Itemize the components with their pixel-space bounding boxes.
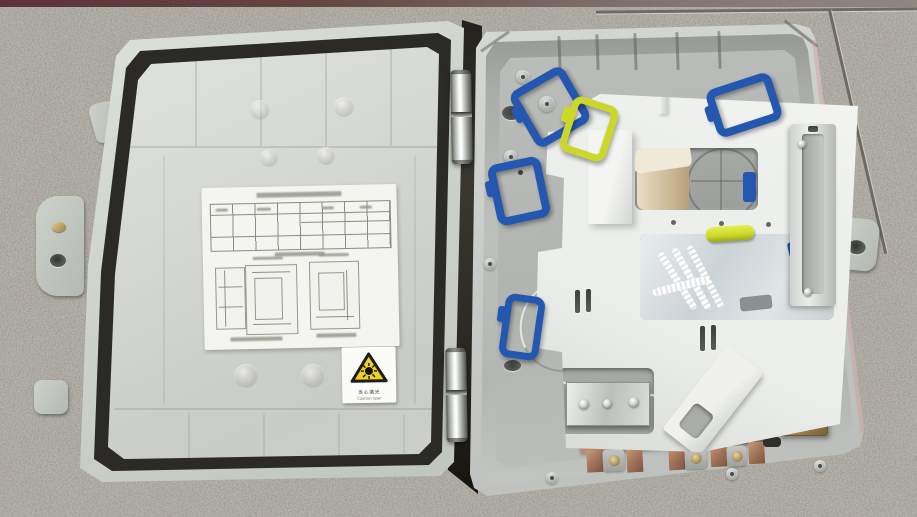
dimple xyxy=(334,97,354,117)
diagonal-bracket xyxy=(662,345,764,457)
enclosure-base xyxy=(462,12,880,506)
screw-boss xyxy=(726,468,738,480)
screw-icon xyxy=(629,397,639,407)
diagram-caption xyxy=(230,336,282,341)
dimple xyxy=(260,149,278,167)
hinge-cap xyxy=(447,438,468,442)
diagram-inner xyxy=(254,277,283,320)
hinge-cap xyxy=(450,70,471,74)
molded-cross-line xyxy=(720,150,722,210)
vent-slot xyxy=(700,326,705,351)
mold-line xyxy=(163,156,165,404)
warning-text-en: Caution laser xyxy=(353,397,387,401)
warning-text-cn: 当心激光 xyxy=(348,389,391,395)
mold-line xyxy=(338,414,340,456)
vent-slot xyxy=(711,325,716,350)
laser-warning-sticker: 当心激光 Caution laser xyxy=(342,347,397,404)
dimple xyxy=(234,364,258,388)
support-rail xyxy=(790,124,836,306)
tray-screw-hole xyxy=(766,222,771,227)
mold-line xyxy=(325,48,327,146)
blue-fitting xyxy=(743,172,756,202)
diagram-open-door xyxy=(215,267,246,330)
diagram-line xyxy=(219,306,243,308)
mold-line xyxy=(260,50,262,146)
mold-line xyxy=(195,54,197,146)
dimple xyxy=(317,147,335,165)
comb-finger xyxy=(586,450,603,473)
floor-wall-base-strip xyxy=(0,0,917,7)
hinge-joint xyxy=(451,112,472,117)
drum-window xyxy=(635,148,758,210)
label-title-illegible xyxy=(256,191,341,198)
hinge-cap xyxy=(445,348,466,352)
photo-canvas: { "scene": { "subject": "Opened wall-mou… xyxy=(0,0,917,517)
table-header-text xyxy=(322,206,334,209)
mold-line xyxy=(188,412,190,458)
comb-finger xyxy=(626,448,643,473)
diagram-line xyxy=(346,270,348,320)
diagram-inner xyxy=(318,272,345,311)
rail-channel xyxy=(802,134,824,294)
spec-label xyxy=(201,184,399,350)
screw-boss xyxy=(814,460,826,472)
hinge-bottom xyxy=(445,348,468,442)
screw-boss xyxy=(484,258,496,270)
screw-icon xyxy=(579,399,589,409)
brass-nut-post xyxy=(726,445,747,466)
screw-icon xyxy=(804,288,812,296)
mold-line xyxy=(414,156,416,404)
laser-warning-triangle-icon xyxy=(349,351,390,386)
dimple xyxy=(301,364,325,388)
table-header-text xyxy=(257,208,271,211)
tray-screw-hole xyxy=(671,220,676,225)
diagram-line xyxy=(218,286,242,288)
mold-line xyxy=(263,414,265,458)
diagram-caption xyxy=(316,333,356,338)
mold-line xyxy=(128,146,438,148)
mold-line xyxy=(403,414,405,454)
diagram-line xyxy=(316,316,354,318)
hinge-joint xyxy=(446,390,467,395)
bracket-window xyxy=(558,368,654,434)
table-header-text xyxy=(360,205,372,208)
hinge-top xyxy=(450,70,473,164)
mold-line xyxy=(114,408,432,410)
dimple xyxy=(250,100,270,120)
screw-boss xyxy=(546,472,558,484)
screw-icon xyxy=(798,140,806,148)
diagram-caption xyxy=(319,253,349,257)
diagram-box-side xyxy=(309,261,360,330)
tray-screw-hole xyxy=(719,221,724,226)
brass-nut-post xyxy=(602,449,625,472)
diagram-line xyxy=(253,323,291,325)
diagram-line xyxy=(252,271,290,273)
diagram-caption xyxy=(253,256,283,260)
vent-slot xyxy=(575,290,580,313)
enclosure-lid: 当心激光 Caution laser xyxy=(58,16,474,504)
mold-line xyxy=(390,46,392,146)
bracket-hole xyxy=(678,402,715,440)
mount-hole xyxy=(504,360,521,371)
screw-icon xyxy=(603,399,612,408)
diagram-line xyxy=(224,271,226,327)
vent-slot xyxy=(586,289,591,312)
diagram-box-front xyxy=(245,264,298,335)
hinge-cap xyxy=(452,160,473,164)
table-header-text xyxy=(216,209,228,212)
metal-bracket xyxy=(566,382,650,426)
rail-slot xyxy=(808,126,818,132)
